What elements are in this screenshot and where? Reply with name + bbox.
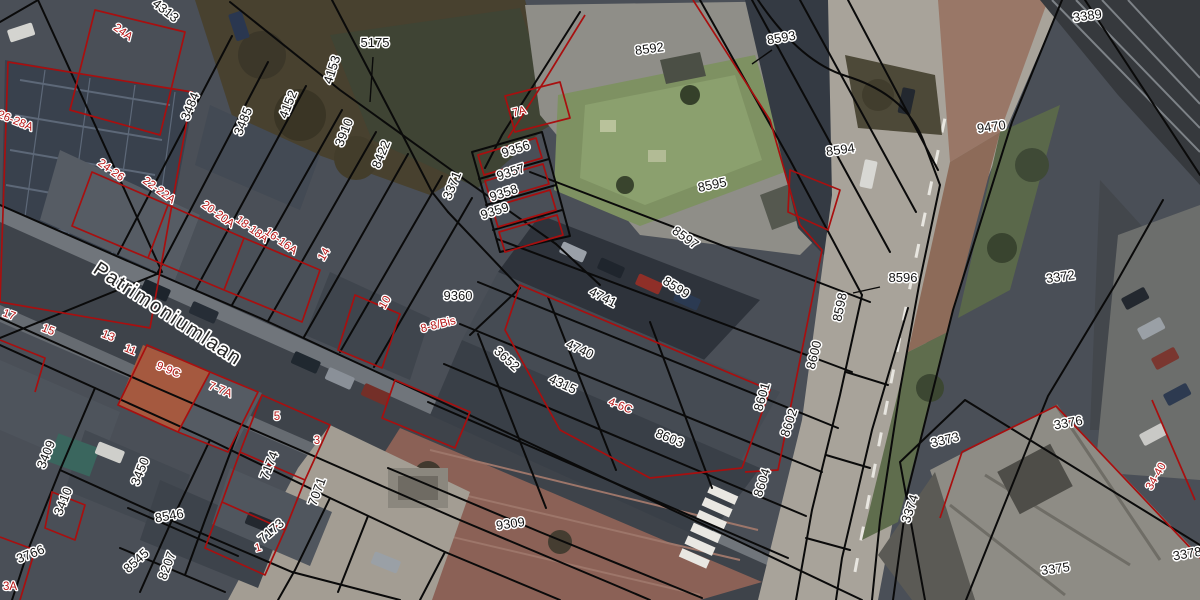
address-label-3A: 3A — [3, 581, 17, 593]
address-label-3: 3 — [314, 435, 320, 447]
address-label-5: 5 — [274, 411, 280, 423]
map-canvas: 4313348434854152415339108422337151758592… — [0, 0, 1200, 600]
roof-garden-path — [600, 120, 616, 132]
shrub — [680, 85, 700, 105]
tree — [548, 530, 572, 554]
tree — [1015, 148, 1049, 182]
parcel-label-5175: 5175 — [361, 35, 390, 50]
map-viewport[interactable]: 4313348434854152415339108422337151758592… — [0, 0, 1200, 600]
tree — [987, 233, 1017, 263]
tree — [916, 374, 944, 402]
parcel-label-8596: 8596 — [889, 270, 918, 285]
roof-garden-path — [648, 150, 666, 162]
parcel-label-9360: 9360 — [444, 288, 473, 303]
shrub — [616, 176, 634, 194]
